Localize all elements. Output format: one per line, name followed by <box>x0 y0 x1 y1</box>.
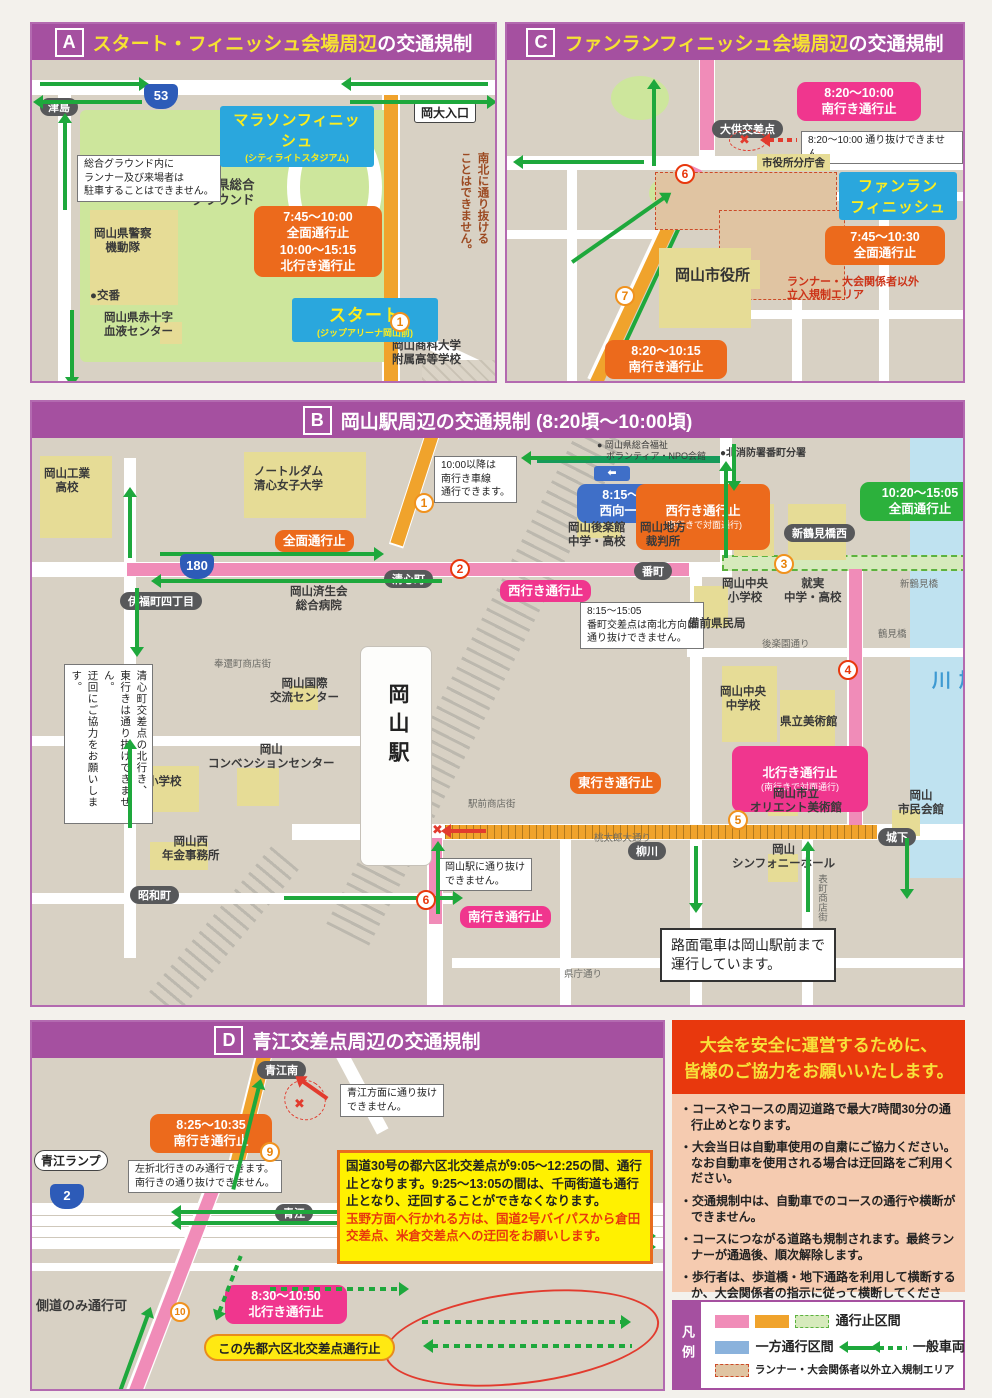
start-label: スタート <box>299 301 431 326</box>
npo-label: ● 岡山県総合福祉 ボランティア・NPO会館 <box>597 440 706 461</box>
showacho-label: 昭和町 <box>130 886 179 904</box>
chuo-jhs-label: 岡山中央 中学校 <box>720 686 766 713</box>
marker-6: 6 <box>675 164 695 184</box>
road <box>567 166 577 381</box>
railway-band <box>149 846 299 1005</box>
marker-7: 7 <box>615 286 635 306</box>
tram-note: 路面電車は岡山駅前まで 運行しています。 <box>660 928 836 982</box>
seishin-intersection-note: 清心町交差点の北行き、 東行きは通り抜けできません。 迂回にご協力をお願いします… <box>64 664 153 824</box>
panel-d-title: 青江交差点周辺の交通規制 <box>252 1027 480 1054</box>
funrun-finish-label: ファンラン フィニッシュ <box>846 175 950 217</box>
panel-a-map: 津島 53 マラソンフィニッシュ (シティライトスタジアム) 岡大入口 岡山県総… <box>32 60 495 381</box>
marker-9: 9 <box>260 1142 280 1162</box>
shiroshita-label: 城下 <box>878 828 916 846</box>
road <box>32 1263 663 1271</box>
route30-note-red: 玉野方面へ行かれる方は、国道2号バイパスから倉田交差点、米倉交差点への迂回をお願… <box>346 1211 644 1246</box>
panel-c: C ファンランフィニッシュ会場周辺の交通規制 8:20〜10: <box>505 22 965 383</box>
flyer-sheet: A スタート・フィニッシュ会場周辺の交通規制 津島 53 <box>0 0 992 1398</box>
green-arrow <box>694 846 698 904</box>
green-arrow <box>160 579 442 583</box>
panel-c-title-highlight: ファンランフィニッシュ会場周辺 <box>564 34 848 55</box>
closed-route-pink <box>700 60 714 150</box>
yanagawa-label: 柳川 <box>628 842 666 860</box>
orange-swatch <box>755 1315 789 1328</box>
branch-office-label: 市役所分庁舎 <box>757 154 830 171</box>
notredame-label: ノートルダム 清心女子大学 <box>254 466 323 493</box>
full-closure-callout: 全面通行止 <box>275 530 354 552</box>
panel-a-title-highlight: スタート・フィニッシュ会場周辺 <box>93 34 378 55</box>
east-closure-callout: 東行き通行止 <box>570 772 661 794</box>
green-arrow-dashed-icon <box>879 1346 907 1350</box>
parking-note: 総合グラウンド内に ランナー及び来場者は 駐車することはできません。 <box>77 155 221 202</box>
panel-c-letter: C <box>526 28 555 57</box>
start-box: スタート (ジップアリーナ岡山前) <box>292 298 438 342</box>
x-mark: ✖ <box>739 132 750 148</box>
panel-b-header: B 岡山駅周辺の交通規制 (8:20頃〜10:00頃) <box>32 402 963 438</box>
closure-oval-note: この先都六区北交差点通行止 <box>204 1334 395 1361</box>
road <box>687 648 963 657</box>
panel-c-header: C ファンランフィニッシュ会場周辺の交通規制 <box>507 24 963 60</box>
national-route-30-box: 国道30号の都六区北交差点が9:05〜12:25の間、通行止となります。9:25… <box>337 1150 653 1264</box>
shintsurumibashi-west-label: 新鶴見橋西 <box>784 524 855 542</box>
asahi-river-label: 旭 川 <box>926 670 963 695</box>
south-closure-callout-2: 8:20〜10:15 南行き通行止 <box>605 340 727 379</box>
green-arrow <box>128 496 132 558</box>
side-road-label: 側道のみ通行可 <box>36 1298 127 1313</box>
green-arrow <box>522 160 644 164</box>
pref-museum-label: 県立美術館 <box>780 716 838 730</box>
bancho-label: 番町 <box>634 562 672 580</box>
south-closure-callout: 8:20〜10:00 南行き通行止 <box>797 82 921 121</box>
pedestrian-note: 歩行者・自転車も 南北に通り抜ける ことはできません。 <box>456 152 495 367</box>
tsurumibashi-label: 鶴見橋 <box>878 626 907 640</box>
cityhall-label: 岡山市役所 <box>665 260 760 289</box>
start-sub: (ジップアリーナ岡山前) <box>299 326 431 339</box>
panel-a: A スタート・フィニッシュ会場周辺の交通規制 津島 53 <box>30 22 497 383</box>
marathon-finish-label: マラソンフィニッシュ <box>227 109 367 151</box>
orient-museum-label: 岡山市立 オリエント美術館 <box>750 788 842 815</box>
panel-d-header: D 青江交差点周辺の交通規制 <box>32 1022 663 1058</box>
after-10-note: 10:00以降は 南行き車線 通行できます。 <box>434 456 517 503</box>
marker-6: 6 <box>416 890 436 910</box>
no-pass-oval <box>277 1072 333 1128</box>
funrun-finish-box: ファンラン フィニッシュ <box>839 172 957 220</box>
road <box>717 310 963 319</box>
west-closure-label: 西行き通行止 <box>665 504 740 518</box>
green-dashed-arrow <box>422 1320 622 1324</box>
panel-c-title-rest: の交通規制 <box>849 34 944 55</box>
safety-info-header: 大会を安全に運営するために、 皆様のご協力をお願いいたします。 <box>672 1020 965 1094</box>
panel-b: B 岡山駅周辺の交通規制 (8:20頃〜10:00頃) <box>30 400 965 1007</box>
safety-title-line1: 大会を安全に運営するために、 <box>672 1033 965 1059</box>
ekimae-street-label: 駅前商店街 <box>468 796 516 810</box>
panel-b-map: 岡山駅 岡山工業 高校 ノートルダム 清心女子大学 10:00以降は 南行き車線… <box>32 438 963 1005</box>
shintsurumibashi-label: 新鶴見橋 <box>900 576 938 590</box>
green-arrow <box>806 850 810 912</box>
momotaro-street-label: 桃太郎大通り <box>594 830 651 844</box>
panel-a-letter: A <box>55 28 84 57</box>
korakuen-street-label: 後楽園通り <box>762 636 810 650</box>
green-arrow <box>905 838 909 890</box>
panel-c-title: ファンランフィニッシュ会場周辺の交通規制 <box>564 29 943 56</box>
pension-office-label: 岡山西 年金事務所 <box>162 836 220 863</box>
restricted-area-note: ランナー・大会関係者以外 立入規制エリア <box>787 276 919 302</box>
marker-2: 2 <box>450 559 470 579</box>
building <box>237 768 279 806</box>
omotecho-label: 表町商店街 <box>814 874 828 922</box>
lightgreen-dashed-swatch <box>795 1315 829 1328</box>
marker-1: 1 <box>390 312 410 332</box>
safety-title-line2: 皆様のご協力をお願いいたします。 <box>672 1059 965 1085</box>
road <box>507 230 657 239</box>
red-dashed-arrow <box>769 138 797 142</box>
panel-a-title: スタート・フィニッシュ会場周辺の交通規制 <box>93 29 473 56</box>
info-bullet-2: ・大会当日は自動車使用の自粛にご協力ください。なお自動車を使用される場合は迂回路… <box>680 1140 957 1187</box>
legend-tab-label: 凡例 <box>678 1325 697 1365</box>
panel-a-title-rest: の交通規制 <box>377 34 472 55</box>
route30-note-black: 国道30号の都六区北交差点が9:05〜12:25の間、通行止となります。9:25… <box>346 1159 642 1208</box>
panel-a-header: A スタート・フィニッシュ会場周辺の交通規制 <box>32 24 495 60</box>
marker-5: 5 <box>728 810 748 830</box>
okayama-station-label: 岡山駅 <box>382 683 412 770</box>
closed-route-orange <box>390 438 438 546</box>
red-arrow <box>450 829 486 833</box>
bancho-note: 8:15〜15:05 番町交差点は南北方向に 通り抜けできません。 <box>580 602 704 649</box>
aoe-no-pass-note: 青江方面に通り抜け できません。 <box>340 1084 444 1117</box>
panel-b-title: 岡山駅周辺の交通規制 (8:20頃〜10:00頃) <box>341 407 693 434</box>
green-arrow <box>42 100 142 104</box>
legend-general-label: 一般車両 <box>913 1339 965 1354</box>
info-bullet-4: ・コースにつながる道路も規制されます。最終ランナーが通過後、順次解除します。 <box>680 1232 957 1263</box>
south-closure-callout: 8:25〜10:35 南行き通行止 <box>150 1114 272 1153</box>
x-mark: ✖ <box>432 822 443 838</box>
kencho-street-label: 県庁通り <box>564 966 602 980</box>
green-arrow <box>63 122 67 210</box>
route-53-shield: 53 <box>144 84 178 109</box>
saiseikai-label: 岡山済生会 総合病院 <box>290 586 348 613</box>
legend-tab: 凡例 <box>674 1302 701 1388</box>
legend: 凡例 通行止区間 一方通行区間 一般車両 ランナー・大会関係者以外立入規制エリア <box>672 1300 965 1390</box>
green-closure-callout: 10:20〜15:05 全面通行止 <box>860 482 963 521</box>
green-arrow <box>350 100 488 104</box>
panel-d-map: 青江南 ✖ 青江方面に通り抜け できません。 8:25〜10:35 南行き通行止… <box>32 1058 663 1389</box>
route-180-shield: 180 <box>180 554 214 579</box>
info-bullet-1: ・コースやコースの周辺道路で最大7時間30分の通行止めとなります。 <box>680 1102 957 1133</box>
legend-row-oneway: 一方通行区間 一般車両 <box>712 1336 965 1355</box>
marker-4: 4 <box>838 660 858 680</box>
west-closure-pink-callout: 西行き通行止 <box>500 580 591 602</box>
station-no-pass-note: 岡山駅に通り抜け できません。 <box>438 858 532 891</box>
marker-1: 1 <box>414 493 434 513</box>
shujitsu-label: 就実 中学・高校 <box>784 578 842 605</box>
hokancho-street-label: 奉還町商店街 <box>214 656 271 670</box>
pink-swatch <box>715 1315 749 1328</box>
closure-oval-label: この先都六区北交差点通行止 <box>218 1342 381 1356</box>
green-arrow <box>350 82 488 86</box>
green-dashed-arrow <box>432 1344 632 1348</box>
ifukucho-label: 伊福町四丁目 <box>120 592 202 610</box>
west-arrow-icon: ⬅ <box>594 466 630 481</box>
convention-center-label: 岡山 コンベンションセンター <box>208 744 335 771</box>
left-turn-note: 左折北行きのみ通行できます。 南行きの通り抜けできません。 <box>128 1160 282 1193</box>
north-closure-label: 北行き通行止 <box>762 766 837 780</box>
korakukan-label: 岡山後楽館 中学・高校 <box>568 522 626 549</box>
restricted-area-swatch <box>715 1364 749 1377</box>
green-arrow <box>135 588 139 648</box>
shoka-univ-label: 岡山商科大学 附属高等学校 <box>392 340 461 367</box>
bloodcenter-label: 岡山県赤十字 血液センター <box>104 312 173 339</box>
info-bullet-3: ・交通規制中は、自動車でのコースの通行や横断ができません。 <box>680 1194 957 1225</box>
intl-center-label: 岡山国際 交流センター <box>270 678 339 705</box>
chuo-elementary-label: 岡山中央 小学校 <box>722 578 768 605</box>
marathon-finish-box: マラソンフィニッシュ (シティライトスタジアム) <box>220 106 374 167</box>
police-label: 岡山県警察 機動隊 <box>94 228 152 255</box>
aoe-ramp-label: 青江ランプ <box>34 1150 108 1171</box>
blue-swatch <box>715 1341 749 1354</box>
green-arrow <box>732 444 736 482</box>
closure-times-callout: 7:45〜10:00 全面通行止 10:00〜15:15 北行き通行止 <box>254 206 382 277</box>
green-arrow <box>436 850 440 914</box>
marker-3: 3 <box>774 554 794 574</box>
court-label: 岡山地方 裁判所 <box>640 522 686 549</box>
green-arrow <box>128 748 132 828</box>
panel-b-letter: B <box>303 406 332 435</box>
route-2-shield: 2 <box>50 1184 84 1209</box>
marathon-finish-sub: (シティライトスタジアム) <box>227 151 367 164</box>
green-dashed-arrow <box>270 1287 400 1291</box>
safety-info-body: ・コースやコースの周辺道路で最大7時間30分の通行止めとなります。 ・大会当日は… <box>672 1094 965 1292</box>
legend-row-closed: 通行止区間 <box>712 1310 901 1329</box>
legend-closed-label: 通行止区間 <box>836 1313 901 1328</box>
panel-c-map: 8:20〜10:00 南行き通行止 大供交差点 ✖ 8:20〜10:00 通り抜… <box>507 60 963 381</box>
panel-d: D 青江交差点周辺の交通規制 青江南 ✖ 青江方面に <box>30 1020 665 1391</box>
full-closure-callout: 7:45〜10:30 全面通行止 <box>825 226 945 265</box>
bizen-bureau-label: 備前県民局 <box>688 618 746 632</box>
koban-label: ●交番 <box>90 290 120 304</box>
legend-oneway-label: 一方通行区間 <box>756 1339 834 1354</box>
legend-area-label: ランナー・大会関係者以外立入規制エリア <box>755 1364 955 1376</box>
place-label-okadai: 岡大入口 <box>414 102 476 123</box>
south-closure-callout: 南行き通行止 <box>460 906 551 928</box>
green-arrow <box>652 88 656 166</box>
detour-ellipse <box>379 1276 663 1389</box>
green-arrow <box>40 82 140 86</box>
legend-row-area: ランナー・大会関係者以外立入規制エリア <box>712 1362 954 1377</box>
x-mark: ✖ <box>294 1096 305 1112</box>
panel-d-letter: D <box>214 1026 243 1055</box>
kogyo-label: 岡山工業 高校 <box>44 468 90 495</box>
closed-route-orange-hatched <box>445 825 877 839</box>
symphony-hall-label: 岡山 シンフォニーホール <box>732 844 835 871</box>
shiminkaikan-label: 岡山 市民会館 <box>898 790 944 817</box>
marker-10: 10 <box>170 1302 190 1322</box>
green-arrow <box>70 310 74 378</box>
green-arrow <box>530 456 590 460</box>
